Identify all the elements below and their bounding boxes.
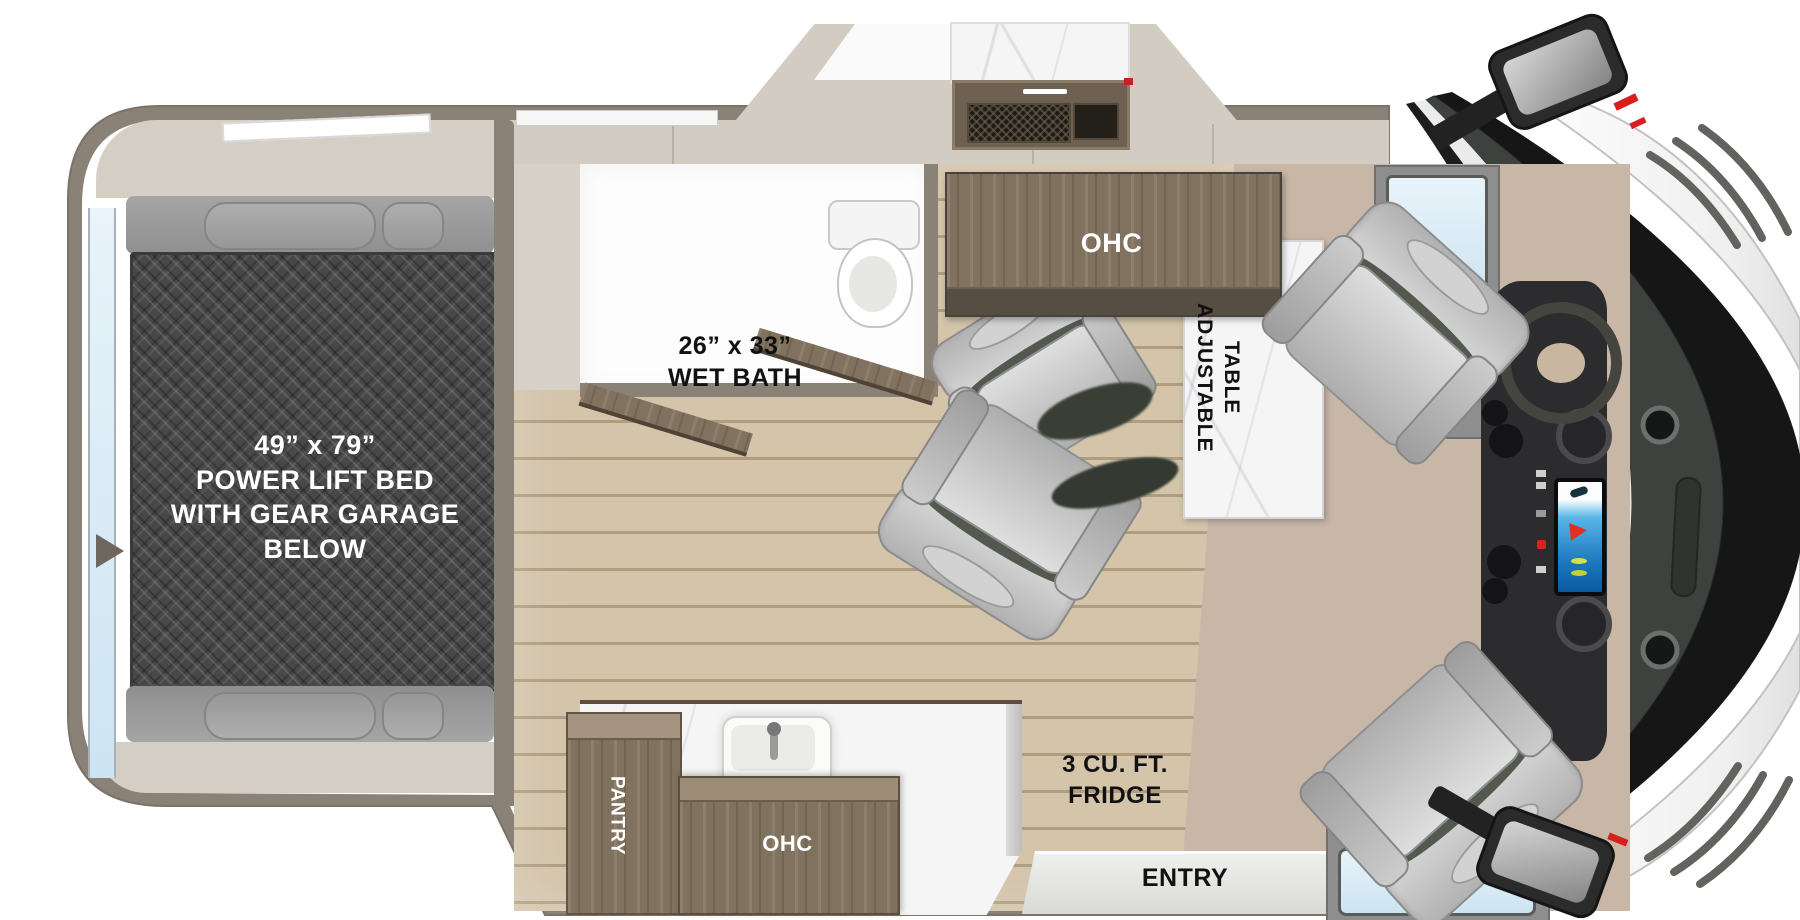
dash-knob xyxy=(1487,545,1521,579)
wet-bath-label: 26” x 33” WET BATH xyxy=(620,330,850,394)
dash-knob xyxy=(1489,424,1523,458)
dash-button xyxy=(1536,482,1546,489)
dash-button-red xyxy=(1537,540,1546,549)
table-label-line2: TABLE xyxy=(1217,258,1244,498)
adjustable-table-label: ADJUSTABLE TABLE xyxy=(1190,258,1314,498)
fridge-size: 3 CU. FT. xyxy=(1030,750,1200,781)
drawer-handle xyxy=(1023,89,1067,94)
entry-label: ENTRY xyxy=(1090,862,1280,894)
exterior-kitchen-counter xyxy=(950,22,1130,84)
table-label-line1: ADJUSTABLE xyxy=(1190,258,1217,498)
fridge-label: 3 CU. FT. FRIDGE xyxy=(1030,750,1200,811)
footboard-cushion xyxy=(382,692,444,740)
floorplan-canvas: 49” x 79” POWER LIFT BED WITH GEAR GARAG… xyxy=(0,0,1800,920)
bath-window xyxy=(516,110,718,126)
galley-ohc-label: OHC xyxy=(690,830,885,858)
rear-door-window xyxy=(88,208,116,778)
headboard-cushion xyxy=(204,202,376,250)
headboard-cushion xyxy=(382,202,444,250)
nav-arrow-icon xyxy=(1569,521,1588,541)
wet-bath-name: WET BATH xyxy=(620,362,850,394)
dash-vent-icon xyxy=(1556,596,1612,652)
infotainment-screen xyxy=(1554,478,1606,596)
bed-subtitle: WITH GEAR GARAGE BELOW xyxy=(150,497,480,566)
dash-knob xyxy=(1482,578,1508,604)
latch-accent xyxy=(1124,78,1133,85)
rear-door-arrow-icon xyxy=(96,534,124,568)
dash-knob xyxy=(1482,400,1508,426)
dash-button xyxy=(1536,566,1546,573)
bed-dimensions: 49” x 79” xyxy=(150,428,480,463)
sink-icon xyxy=(722,716,828,784)
phone-icon xyxy=(1569,485,1589,498)
bath-side-cabinet xyxy=(514,164,580,390)
bed-label: 49” x 79” POWER LIFT BED WITH GEAR GARAG… xyxy=(150,428,480,566)
dash-button xyxy=(1536,470,1546,477)
pantry-label: PANTRY xyxy=(604,730,640,900)
dash-button xyxy=(1536,510,1546,517)
bedroom-divider-wall xyxy=(494,120,514,806)
exterior-kitchen-cabinet xyxy=(952,80,1130,150)
wet-bath-dimensions: 26” x 33” xyxy=(620,330,850,362)
vent-grille-icon xyxy=(967,103,1071,143)
bed-title: POWER LIFT BED xyxy=(150,463,480,498)
media-icon xyxy=(1571,558,1587,564)
dinette-ohc-label: OHC xyxy=(945,226,1278,261)
rear-cap-bottom xyxy=(96,742,494,793)
media-icon xyxy=(1571,570,1587,576)
footboard-cushion xyxy=(204,692,376,740)
fridge-name: FRIDGE xyxy=(1030,781,1200,812)
toilet-icon xyxy=(828,200,920,330)
cabinet-opening xyxy=(1073,103,1119,140)
